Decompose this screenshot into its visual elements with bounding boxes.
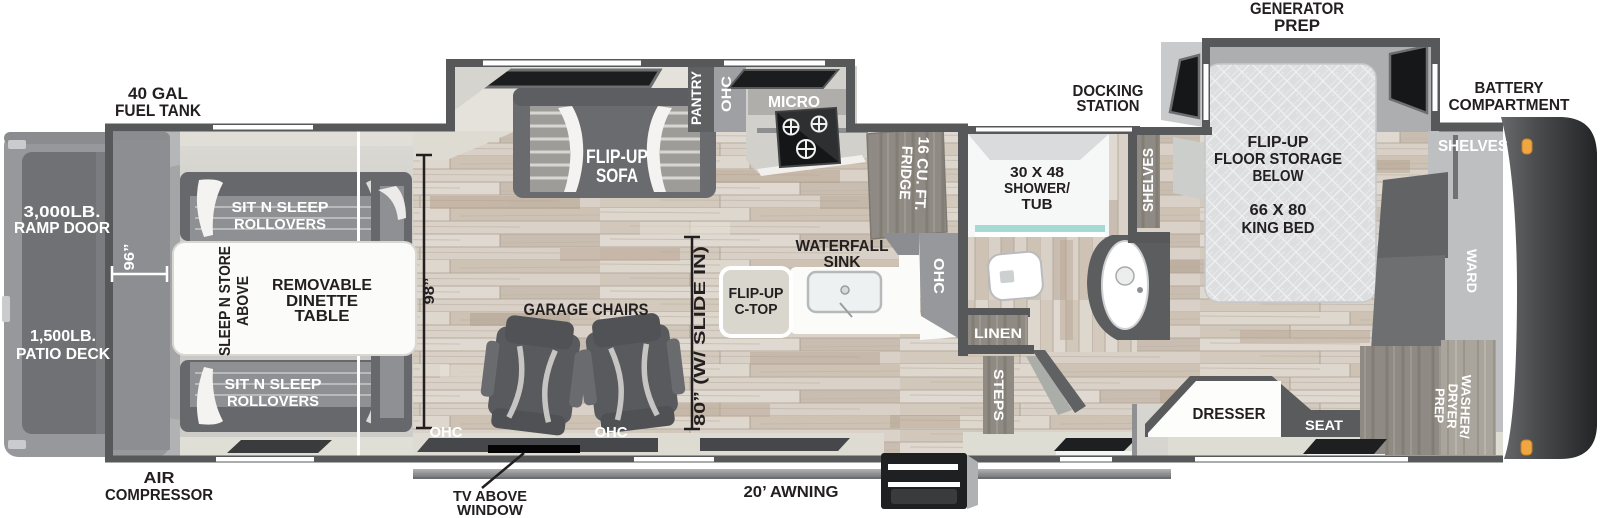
svg-text:3,000LB.: 3,000LB. [24, 204, 101, 221]
svg-text:SHOWER/: SHOWER/ [1004, 180, 1071, 197]
svg-text:FUEL TANK: FUEL TANK [115, 101, 202, 120]
svg-text:PANTRY: PANTRY [688, 70, 704, 125]
svg-text:C-TOP: C-TOP [735, 301, 778, 318]
svg-text:SINK: SINK [824, 254, 861, 271]
svg-text:STATION: STATION [1077, 98, 1140, 115]
svg-text:BATTERY: BATTERY [1475, 80, 1544, 97]
svg-text:WINDOW: WINDOW [457, 502, 524, 518]
svg-text:1,500LB.: 1,500LB. [30, 328, 96, 345]
svg-text:FLIP-UP: FLIP-UP [586, 147, 648, 168]
svg-text:MICRO: MICRO [768, 94, 820, 111]
svg-text:PREP: PREP [1431, 388, 1447, 424]
svg-text:PREP: PREP [1274, 16, 1320, 35]
svg-text:20’ AWNING: 20’ AWNING [744, 484, 839, 501]
svg-text:WATERFALL: WATERFALL [796, 238, 889, 255]
svg-text:SIT N SLEEP: SIT N SLEEP [225, 376, 322, 393]
svg-text:TABLE: TABLE [295, 308, 350, 325]
svg-text:COMPRESSOR: COMPRESSOR [105, 487, 213, 504]
svg-text:FLIP-UP: FLIP-UP [1248, 134, 1309, 151]
svg-text:ROLLOVERS: ROLLOVERS [234, 216, 326, 233]
svg-text:66 X 80: 66 X 80 [1250, 202, 1307, 219]
svg-text:OHC: OHC [718, 76, 734, 112]
svg-text:98”: 98” [421, 278, 438, 305]
svg-text:SIT N SLEEP: SIT N SLEEP [232, 199, 329, 216]
svg-text:REMOVABLE: REMOVABLE [272, 277, 372, 294]
svg-text:SEAT: SEAT [1305, 417, 1343, 433]
svg-text:STEPS: STEPS [991, 369, 1007, 421]
svg-text:BELOW: BELOW [1253, 168, 1305, 185]
svg-text:AIR: AIR [144, 470, 175, 487]
svg-text:LINEN: LINEN [974, 325, 1022, 341]
svg-text:FLIP-UP: FLIP-UP [729, 285, 784, 302]
svg-text:SLEEP N STORE: SLEEP N STORE [217, 246, 234, 356]
svg-text:KING BED: KING BED [1242, 220, 1315, 237]
svg-text:ABOVE: ABOVE [235, 276, 252, 326]
svg-text:80” (W/ SLIDE IN): 80” (W/ SLIDE IN) [692, 246, 709, 426]
svg-text:WARD: WARD [1464, 249, 1480, 293]
svg-text:PATIO DECK: PATIO DECK [16, 346, 110, 363]
svg-text:COMPARTMENT: COMPARTMENT [1449, 97, 1570, 114]
svg-text:30 X 48: 30 X 48 [1010, 164, 1064, 181]
svg-text:SHELVES: SHELVES [1140, 148, 1157, 212]
svg-text:OHC: OHC [930, 258, 947, 294]
svg-text:FRIDGE: FRIDGE [896, 145, 916, 200]
svg-text:ROLLOVERS: ROLLOVERS [227, 393, 319, 410]
svg-text:OHC: OHC [430, 424, 463, 441]
svg-text:OHC: OHC [595, 424, 628, 441]
svg-text:TUB: TUB [1022, 196, 1053, 213]
svg-text:SOFA: SOFA [596, 166, 638, 187]
svg-text:DRESSER: DRESSER [1193, 406, 1266, 423]
svg-text:RAMP DOOR: RAMP DOOR [14, 220, 110, 237]
svg-text:96”: 96” [121, 244, 138, 271]
svg-text:GARAGE CHAIRS: GARAGE CHAIRS [524, 300, 649, 319]
svg-text:FLOOR STORAGE: FLOOR STORAGE [1214, 151, 1342, 168]
svg-text:SHELVES: SHELVES [1438, 138, 1508, 155]
